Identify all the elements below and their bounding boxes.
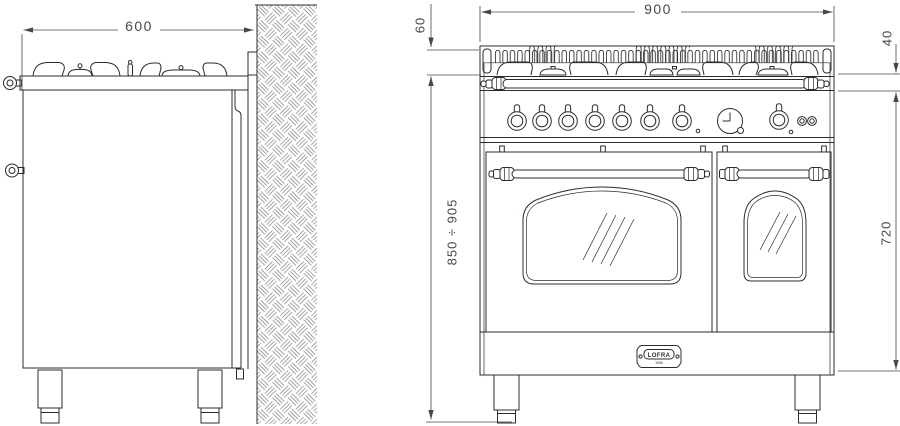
front-legs xyxy=(494,375,820,423)
dim-900-label: 900 xyxy=(644,1,672,17)
cabinet-outline xyxy=(480,46,834,375)
dim-60: 60 xyxy=(413,4,479,50)
dim-720-label: 720 xyxy=(879,221,894,246)
range-cooker-dimension-drawing: 600 xyxy=(0,0,900,426)
dim-40: 40 xyxy=(838,30,900,91)
wall-hatch xyxy=(257,5,317,424)
body-side xyxy=(23,90,232,368)
door-handle-side xyxy=(6,164,25,177)
dim-60-label: 60 xyxy=(413,17,428,33)
side-legs xyxy=(38,370,222,423)
burner-side-right xyxy=(140,63,227,76)
wall-section xyxy=(255,5,317,424)
rear-bracket xyxy=(248,52,257,75)
dim-850-905-label: 850 ÷ 905 xyxy=(445,199,460,266)
dim-720: 720 xyxy=(838,93,900,372)
igniter-side xyxy=(128,61,133,77)
technical-drawing: 600 xyxy=(0,0,900,426)
brand-badge-label: LOFRA xyxy=(648,353,671,359)
cooktop-slab-side xyxy=(20,76,248,90)
dim-600-label: 600 xyxy=(125,18,153,34)
side-view: 600 xyxy=(4,18,258,423)
dim-40-label: 40 xyxy=(880,30,895,46)
dim-900: 900 xyxy=(480,1,834,42)
front-view: LOFRA 1956 900 60 850 ÷ 905 xyxy=(413,1,900,423)
brand-badge-sub: 1956 xyxy=(655,361,663,365)
rail-end-knob xyxy=(4,77,22,90)
rear-foot xyxy=(237,369,244,379)
rear-spacer xyxy=(232,75,248,369)
burner-side-left xyxy=(33,63,120,77)
